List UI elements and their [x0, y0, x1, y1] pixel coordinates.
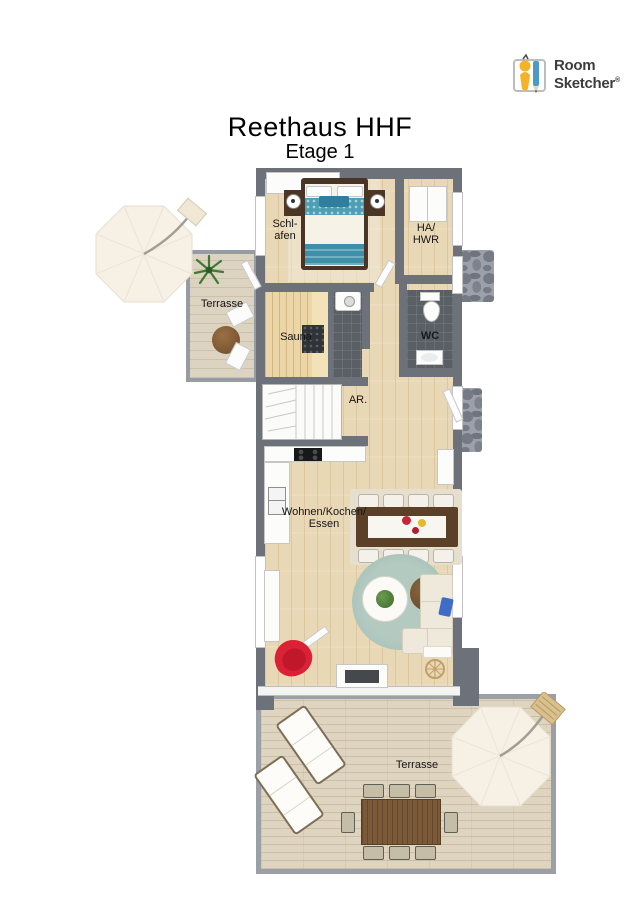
label-living: Wohnen/Kochen/ Essen: [256, 506, 392, 530]
bed-accent-pillow: [319, 196, 349, 207]
dining-chair: [433, 549, 454, 563]
label-wc: WC: [414, 330, 446, 342]
lamp-center-dot: [375, 199, 379, 203]
wall-wc-south: [399, 368, 457, 377]
outdoor-chair: [415, 846, 436, 860]
bed-foot-blanket: [305, 244, 364, 265]
window-wc-east: [452, 256, 463, 294]
flower-red: [412, 527, 419, 534]
wall-sauna-shower: [328, 288, 333, 377]
logo-line1: Room: [554, 58, 620, 73]
window-utility-east: [452, 192, 463, 246]
shower-head-icon: [344, 296, 355, 307]
label-utility: HA/ HWR: [406, 222, 446, 246]
wheel-decor-icon: [424, 658, 446, 680]
table-plant-icon: [376, 590, 394, 608]
sofa-blanket: [423, 646, 452, 658]
flower-yellow: [418, 519, 426, 527]
lounger-seam: [283, 796, 310, 815]
window-living-east: [452, 556, 463, 618]
label-terrace-upper: Terrasse: [188, 298, 256, 310]
label-terrace-lower: Terrasse: [386, 759, 448, 771]
wall-hall-west: [362, 283, 370, 349]
label-bedroom: Schl- afen: [262, 218, 308, 242]
dining-chair: [408, 494, 429, 508]
sideboard: [264, 570, 280, 642]
outdoor-chair: [363, 784, 384, 798]
sink-divider: [268, 500, 286, 501]
lounger-seam: [305, 746, 332, 765]
roomsketcher-logo: Room Sketcher®: [511, 53, 620, 95]
lounger-seam: [292, 727, 319, 746]
outdoor-chair: [389, 784, 410, 798]
roomsketcher-logo-text: Room Sketcher®: [554, 53, 620, 91]
tv-screen: [345, 670, 379, 683]
wall-bedroom-utility: [395, 172, 404, 284]
lounger-seam: [270, 777, 297, 796]
lamp-center-dot: [291, 199, 295, 203]
outdoor-chair: [444, 812, 458, 833]
staircase: [262, 384, 342, 440]
wall-bedroom-south: [260, 283, 374, 292]
floorplan-page: Room Sketcher® Reethaus HHF Etage 1: [0, 0, 640, 905]
kitchen-cabinet-right: [437, 449, 454, 485]
outdoor-chair: [415, 784, 436, 798]
toilet-tank: [420, 292, 440, 301]
outdoor-chair: [389, 846, 410, 860]
page-title: Reethaus HHF: [0, 112, 640, 143]
dining-chair: [433, 494, 454, 508]
wc-sink-basin: [421, 353, 438, 362]
outdoor-chair: [341, 812, 355, 833]
cabinet-divider: [427, 186, 428, 222]
wall-stub: [256, 694, 274, 710]
cooktop: [294, 448, 322, 461]
label-hall: AR.: [342, 394, 374, 406]
utility-cabinet: [409, 186, 447, 222]
flower-red: [402, 516, 411, 525]
patio-umbrella: [436, 692, 566, 814]
outdoor-dining-table: [361, 799, 441, 845]
flagstone-path-upper: [458, 250, 494, 302]
page-subtitle: Etage 1: [0, 141, 640, 164]
roomsketcher-logo-icon: [511, 53, 549, 95]
outdoor-chair: [363, 846, 384, 860]
label-sauna: Sauna: [270, 331, 322, 343]
wall-wc-west: [399, 283, 407, 375]
logo-line2: Sketcher: [554, 75, 615, 92]
patio-umbrella: [82, 196, 212, 311]
registered-mark: ®: [615, 77, 620, 84]
